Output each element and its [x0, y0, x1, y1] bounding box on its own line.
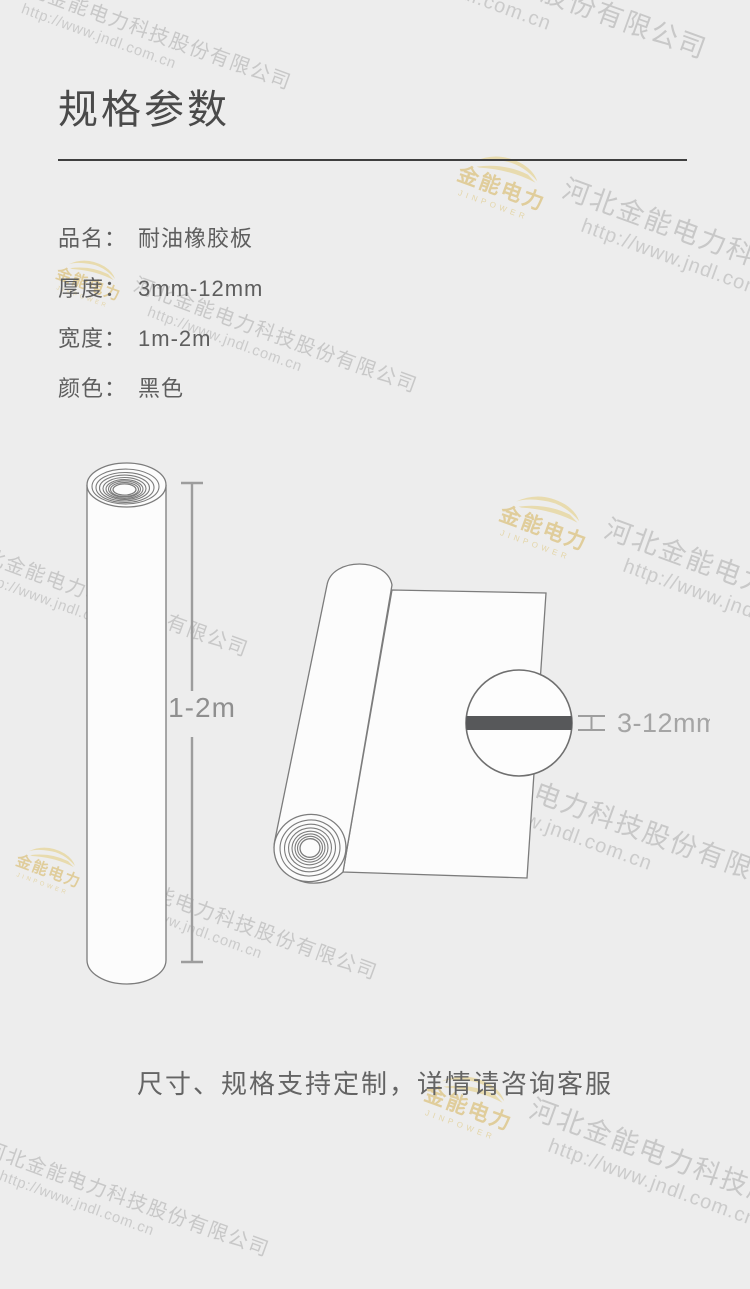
- unrolled-sheet-figure: 3-12mm: [260, 545, 710, 910]
- roll-body: [87, 485, 166, 984]
- thickness-bar: [466, 716, 572, 730]
- spec-row-color: 颜色： 黑色: [58, 377, 263, 401]
- title-divider: [58, 159, 687, 161]
- spec-value: 黑色: [138, 377, 184, 401]
- spec-list: 品名： 耐油橡胶板 厚度： 3mm-12mm 宽度： 1m-2m 颜色： 黑色: [58, 227, 263, 427]
- customization-note: 尺寸、规格支持定制，详情请咨询客服: [0, 1064, 750, 1101]
- roll-core-hole: [113, 484, 136, 495]
- spec-row-thickness: 厚度： 3mm-12mm: [58, 277, 263, 301]
- length-dimension-label: 1-2m: [168, 692, 236, 723]
- spec-value: 1m-2m: [138, 327, 211, 351]
- spec-value: 耐油橡胶板: [138, 227, 253, 251]
- spec-label: 颜色：: [58, 377, 127, 401]
- thickness-dimension-marker: [578, 716, 605, 730]
- watermark-url: http://www.jndl.com.cn: [0, 1168, 264, 1279]
- thickness-dimension-label: 3-12mm: [617, 708, 710, 738]
- spec-row-width: 宽度： 1m-2m: [58, 327, 263, 351]
- section-title: 规格参数: [58, 88, 230, 132]
- spec-row-product-name: 品名： 耐油橡胶板: [58, 227, 263, 251]
- spec-label: 厚度：: [58, 277, 127, 301]
- rubber-roll-figure: 1-2m: [50, 455, 240, 1005]
- spec-label: 品名：: [58, 227, 127, 251]
- spec-value: 3mm-12mm: [138, 277, 263, 301]
- thickness-magnifier: [466, 670, 572, 776]
- spec-section: 规格参数 品名： 耐油橡胶板 厚度： 3mm-12mm 宽度： 1m-2m 颜色…: [0, 0, 750, 1169]
- spec-label: 宽度：: [58, 327, 127, 351]
